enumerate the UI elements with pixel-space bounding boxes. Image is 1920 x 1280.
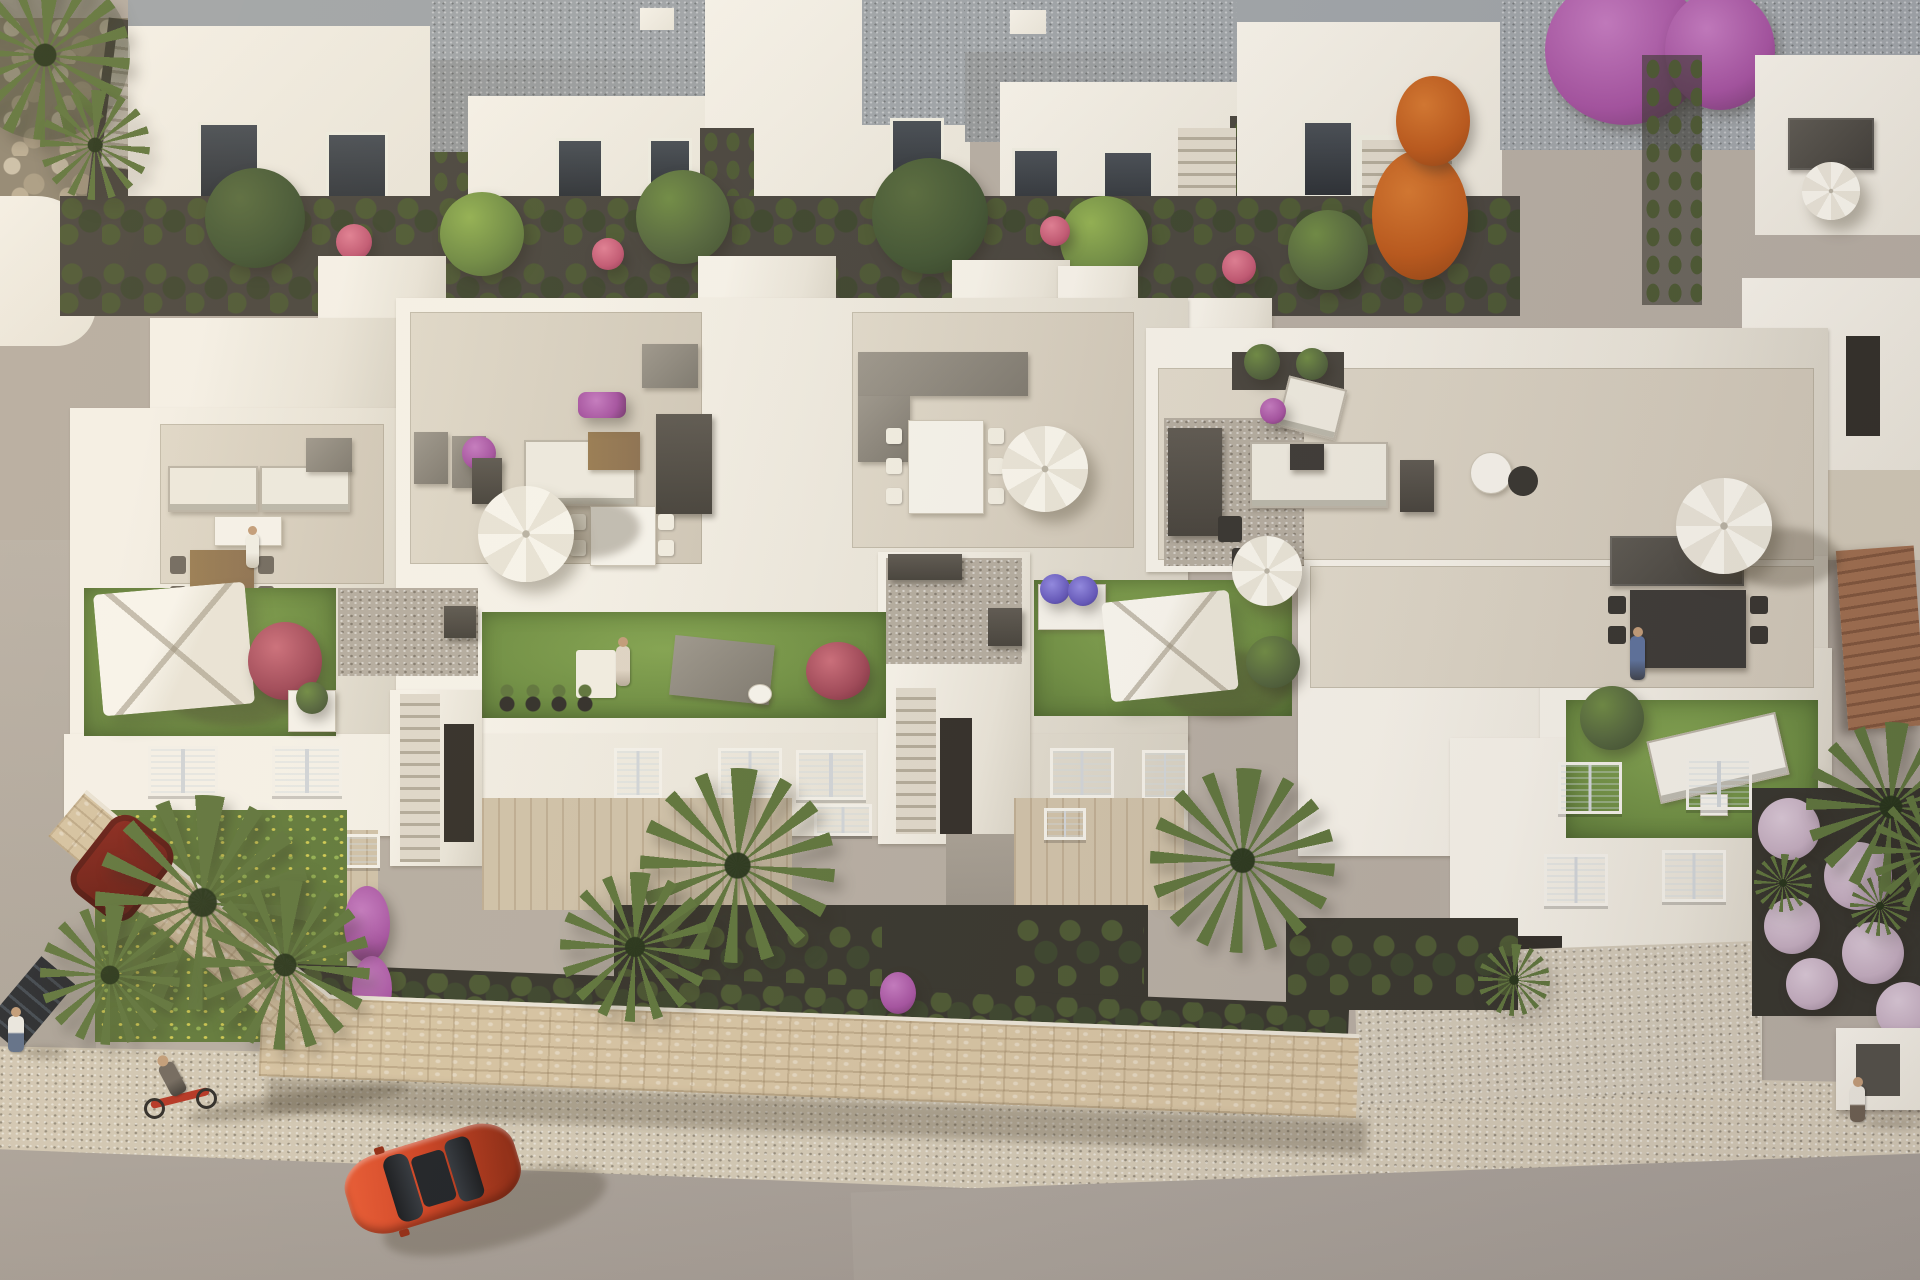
aerial-render-scene: [0, 0, 1920, 1280]
light-overlay: [0, 0, 1920, 1280]
